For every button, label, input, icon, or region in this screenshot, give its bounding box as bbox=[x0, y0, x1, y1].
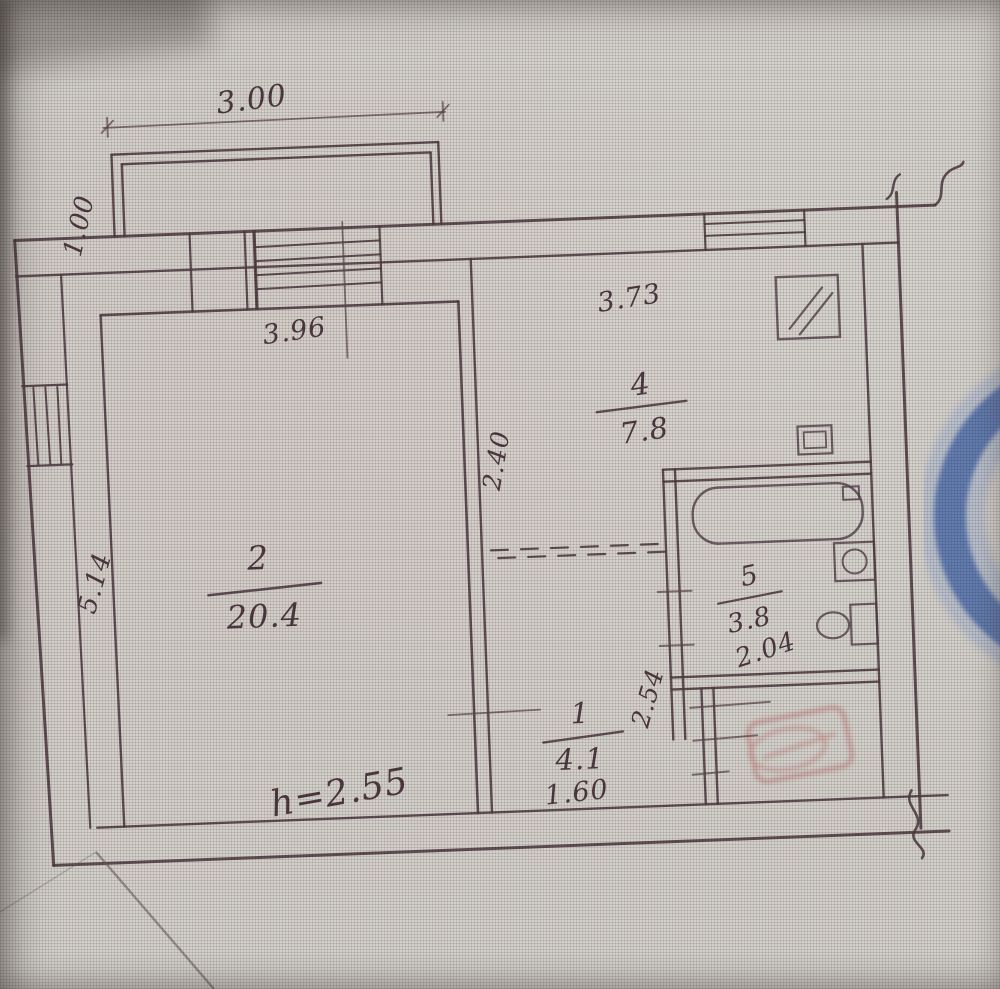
kitchen-area: 7.8 bbox=[618, 410, 671, 451]
bathroom-fraction-line bbox=[718, 591, 782, 603]
entry-wall-and-door-marks bbox=[689, 686, 773, 805]
paper-fold-line bbox=[96, 852, 214, 989]
labels: 3.00 1.00 3.96 5.14 2 20.4 3.73 2.40 4 7… bbox=[52, 59, 806, 833]
floor-plan-photo: 3.00 1.00 3.96 5.14 2 20.4 3.73 2.40 4 7… bbox=[0, 0, 1000, 989]
hallway-fraction-line bbox=[543, 731, 623, 742]
floor-plan-drawing: 3.00 1.00 3.96 5.14 2 20.4 3.73 2.40 4 7… bbox=[0, 0, 1000, 989]
bathroom-number: 5 bbox=[737, 559, 761, 593]
washbasin-icon bbox=[834, 542, 875, 582]
balcony-depth-dim: 1.00 bbox=[58, 192, 101, 259]
balcony-door-opening bbox=[190, 231, 257, 311]
stove-icon bbox=[776, 275, 840, 339]
blue-stamp bbox=[950, 372, 1000, 660]
kitchen-number: 4 bbox=[627, 366, 653, 404]
hallway-depth-dim: 2.54 bbox=[625, 665, 669, 731]
partition-room2 bbox=[457, 259, 492, 813]
kitchen-depth-dim: 2.40 bbox=[477, 428, 516, 493]
room2-area: 20.4 bbox=[225, 596, 303, 637]
kitchen-sink-icon bbox=[797, 425, 832, 454]
window-kitchen bbox=[704, 210, 805, 250]
room2-fraction-line bbox=[208, 583, 321, 595]
kitchen-hall-dashed-opening bbox=[491, 544, 666, 559]
dimension-witness-lines bbox=[342, 215, 540, 719]
room2-number: 2 bbox=[245, 538, 269, 578]
hallway-number: 1 bbox=[570, 696, 591, 731]
balcony-width-dim: 3.00 bbox=[214, 78, 289, 122]
paper-fold-line-2 bbox=[0, 852, 96, 912]
kitchen-width-dim: 3.73 bbox=[595, 278, 663, 319]
window-room2-to-balcony bbox=[255, 226, 383, 309]
hallway-width-dim: 1.60 bbox=[543, 774, 610, 812]
plan-group: 3.00 1.00 3.96 5.14 2 20.4 3.73 2.40 4 7… bbox=[9, 52, 990, 892]
hallway-area: 4.1 bbox=[554, 741, 605, 777]
red-stamp-mark bbox=[744, 706, 854, 784]
room2-width-dim: 3.96 bbox=[261, 311, 329, 351]
window-left-room2 bbox=[22, 384, 72, 466]
room2-length-dim: 5.14 bbox=[72, 549, 118, 617]
balcony-outline bbox=[111, 142, 441, 236]
toilet-icon bbox=[816, 604, 877, 646]
bathtub-icon bbox=[692, 482, 864, 544]
